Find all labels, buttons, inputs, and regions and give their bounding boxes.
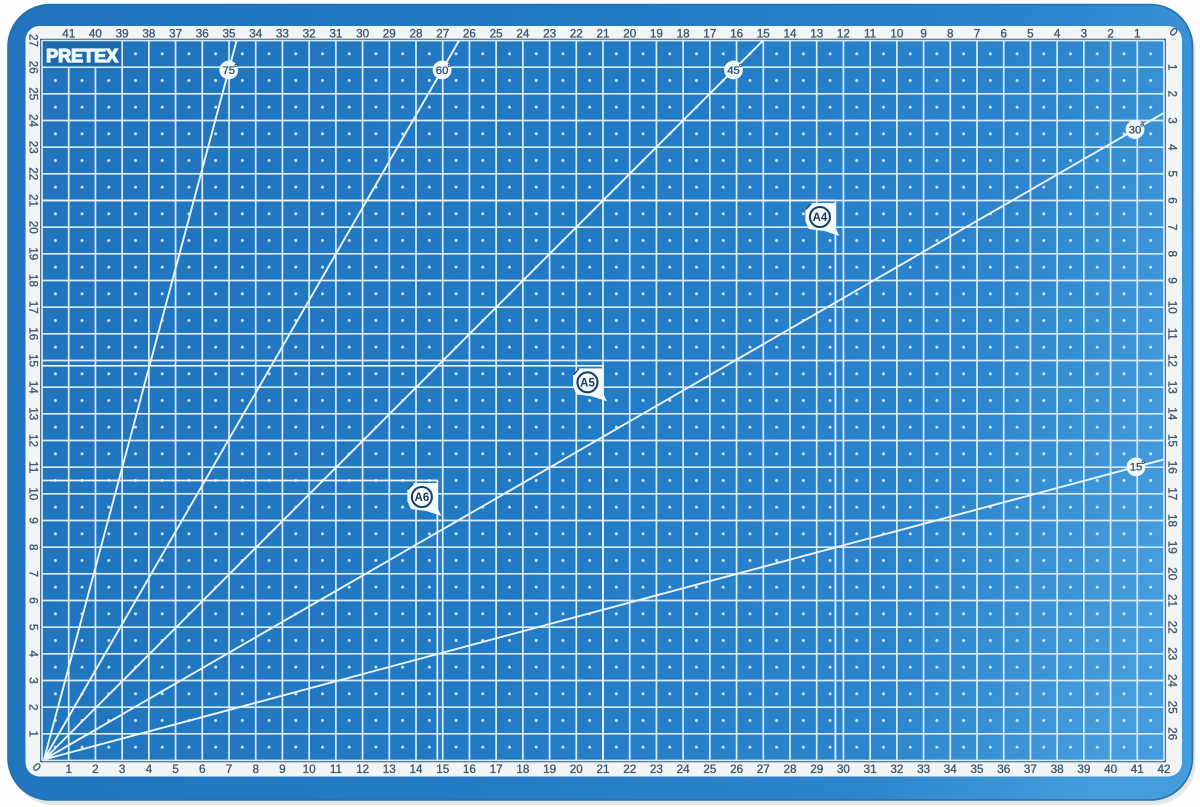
svg-text:37: 37 (169, 27, 182, 40)
svg-text:18: 18 (516, 763, 529, 776)
svg-text:6: 6 (27, 597, 40, 604)
svg-text:25: 25 (490, 27, 504, 40)
svg-text:42: 42 (1157, 763, 1170, 776)
svg-text:28: 28 (783, 763, 796, 776)
svg-text:7: 7 (1165, 224, 1178, 231)
svg-text:29: 29 (810, 763, 823, 776)
svg-text:12: 12 (1165, 354, 1178, 367)
svg-text:4: 4 (27, 651, 40, 658)
svg-text:22: 22 (27, 167, 40, 180)
svg-text:3: 3 (1165, 117, 1178, 124)
svg-text:26: 26 (1165, 727, 1178, 740)
svg-text:6: 6 (1000, 27, 1007, 40)
svg-text:18: 18 (1165, 514, 1178, 527)
svg-text:26: 26 (27, 61, 40, 74)
svg-text:9: 9 (27, 517, 40, 524)
svg-text:40: 40 (1104, 763, 1118, 776)
svg-text:10: 10 (890, 27, 904, 40)
svg-text:15: 15 (757, 27, 771, 40)
svg-text:19: 19 (27, 247, 40, 260)
svg-text:PRETEX: PRETEX (46, 46, 118, 66)
svg-text:34: 34 (944, 763, 958, 776)
svg-text:34: 34 (249, 27, 263, 40)
svg-text:12: 12 (27, 434, 40, 447)
svg-text:14: 14 (409, 763, 423, 776)
svg-text:20: 20 (27, 221, 40, 235)
svg-text:24: 24 (1165, 674, 1178, 688)
svg-text:2: 2 (1165, 91, 1178, 98)
svg-text:A6: A6 (415, 492, 430, 504)
svg-text:17: 17 (1165, 487, 1178, 500)
svg-text:20: 20 (1165, 567, 1178, 581)
svg-text:A4: A4 (813, 212, 828, 224)
svg-text:40: 40 (89, 27, 103, 40)
svg-text:38: 38 (142, 27, 155, 40)
svg-text:16: 16 (730, 27, 743, 40)
svg-text:21: 21 (1165, 594, 1178, 607)
svg-text:1: 1 (1165, 64, 1178, 71)
svg-text:21: 21 (596, 763, 609, 776)
svg-text:8: 8 (947, 27, 954, 40)
svg-text:28: 28 (409, 27, 422, 40)
svg-text:41: 41 (1131, 763, 1144, 776)
svg-text:12: 12 (837, 27, 850, 40)
svg-text:9: 9 (1165, 277, 1178, 284)
svg-text:25: 25 (27, 87, 40, 101)
svg-text:31: 31 (329, 27, 342, 40)
svg-text:15: 15 (1130, 462, 1143, 474)
svg-text:27: 27 (757, 763, 770, 776)
svg-text:29: 29 (383, 27, 396, 40)
svg-text:4: 4 (1054, 27, 1061, 40)
svg-text:22: 22 (1165, 621, 1178, 634)
svg-text:10: 10 (1165, 301, 1178, 315)
svg-text:60: 60 (436, 65, 449, 77)
svg-text:A5: A5 (580, 377, 595, 389)
svg-text:13: 13 (810, 27, 823, 40)
svg-text:5: 5 (27, 624, 40, 631)
svg-text:24: 24 (516, 27, 530, 40)
svg-text:7: 7 (974, 27, 981, 40)
svg-text:3: 3 (27, 677, 40, 684)
svg-text:21: 21 (596, 27, 609, 40)
svg-text:16: 16 (1165, 461, 1178, 474)
svg-text:35: 35 (970, 763, 984, 776)
svg-text:22: 22 (570, 27, 583, 40)
svg-text:37: 37 (1024, 763, 1037, 776)
svg-text:38: 38 (1051, 763, 1064, 776)
svg-text:13: 13 (27, 407, 40, 420)
svg-text:10: 10 (27, 487, 40, 501)
svg-text:9: 9 (279, 763, 286, 776)
svg-text:4: 4 (146, 763, 153, 776)
svg-text:4: 4 (1165, 144, 1178, 151)
svg-text:27: 27 (27, 34, 40, 47)
svg-text:15: 15 (1165, 434, 1178, 448)
svg-text:22: 22 (623, 763, 636, 776)
svg-text:12: 12 (356, 763, 369, 776)
svg-text:30: 30 (1129, 124, 1142, 136)
svg-text:39: 39 (1077, 763, 1090, 776)
svg-text:3: 3 (1081, 27, 1088, 40)
svg-text:6: 6 (1165, 197, 1178, 204)
svg-text:16: 16 (463, 763, 476, 776)
svg-text:11: 11 (27, 461, 40, 473)
svg-text:5: 5 (172, 763, 179, 776)
svg-text:17: 17 (490, 763, 503, 776)
svg-text:36: 36 (997, 763, 1010, 776)
svg-text:24: 24 (677, 763, 691, 776)
svg-text:30: 30 (356, 27, 370, 40)
svg-text:20: 20 (570, 763, 584, 776)
svg-text:15: 15 (27, 354, 40, 368)
svg-text:17: 17 (703, 27, 716, 40)
svg-text:15: 15 (436, 763, 450, 776)
svg-text:7: 7 (27, 571, 40, 578)
svg-text:35: 35 (222, 27, 236, 40)
svg-text:27: 27 (436, 27, 449, 40)
svg-text:19: 19 (1165, 541, 1178, 554)
svg-text:36: 36 (196, 27, 209, 40)
svg-text:11: 11 (864, 27, 876, 40)
svg-text:41: 41 (62, 27, 75, 40)
svg-text:2: 2 (92, 763, 99, 776)
svg-text:30: 30 (837, 763, 851, 776)
svg-text:10: 10 (303, 763, 317, 776)
svg-text:23: 23 (543, 27, 556, 40)
svg-text:33: 33 (917, 763, 930, 776)
svg-text:3: 3 (119, 763, 126, 776)
svg-text:39: 39 (116, 27, 129, 40)
svg-text:26: 26 (730, 763, 743, 776)
svg-text:20: 20 (623, 27, 637, 40)
svg-text:9: 9 (920, 27, 927, 40)
svg-text:24: 24 (27, 114, 40, 128)
svg-text:45: 45 (727, 65, 740, 77)
svg-text:33: 33 (276, 27, 289, 40)
svg-text:16: 16 (27, 327, 40, 340)
svg-text:31: 31 (864, 763, 877, 776)
svg-text:19: 19 (543, 763, 556, 776)
svg-text:5: 5 (1027, 27, 1034, 40)
svg-text:8: 8 (252, 763, 259, 776)
svg-text:25: 25 (703, 763, 717, 776)
svg-text:14: 14 (1165, 407, 1178, 421)
svg-text:11: 11 (1165, 328, 1178, 340)
svg-text:13: 13 (1165, 381, 1178, 394)
svg-text:26: 26 (463, 27, 476, 40)
svg-text:1: 1 (65, 763, 72, 776)
svg-text:14: 14 (783, 27, 797, 40)
svg-text:5: 5 (1165, 171, 1178, 178)
svg-text:75: 75 (223, 65, 236, 77)
svg-text:23: 23 (27, 141, 40, 154)
svg-text:11: 11 (330, 763, 342, 776)
svg-text:32: 32 (303, 27, 316, 40)
svg-text:17: 17 (27, 301, 40, 314)
svg-text:32: 32 (890, 763, 903, 776)
svg-text:19: 19 (650, 27, 663, 40)
svg-text:8: 8 (27, 544, 40, 551)
svg-text:14: 14 (27, 381, 40, 395)
svg-text:21: 21 (27, 194, 40, 207)
svg-text:18: 18 (27, 274, 40, 287)
svg-text:23: 23 (650, 763, 663, 776)
svg-text:1: 1 (27, 731, 40, 738)
svg-text:23: 23 (1165, 647, 1178, 660)
svg-text:25: 25 (1165, 701, 1178, 715)
svg-text:13: 13 (383, 763, 396, 776)
svg-text:1: 1 (1134, 27, 1141, 40)
svg-text:18: 18 (677, 27, 690, 40)
svg-text:2: 2 (1107, 27, 1114, 40)
svg-text:6: 6 (199, 763, 206, 776)
svg-text:7: 7 (226, 763, 233, 776)
svg-text:2: 2 (27, 704, 40, 711)
svg-text:8: 8 (1165, 251, 1178, 258)
